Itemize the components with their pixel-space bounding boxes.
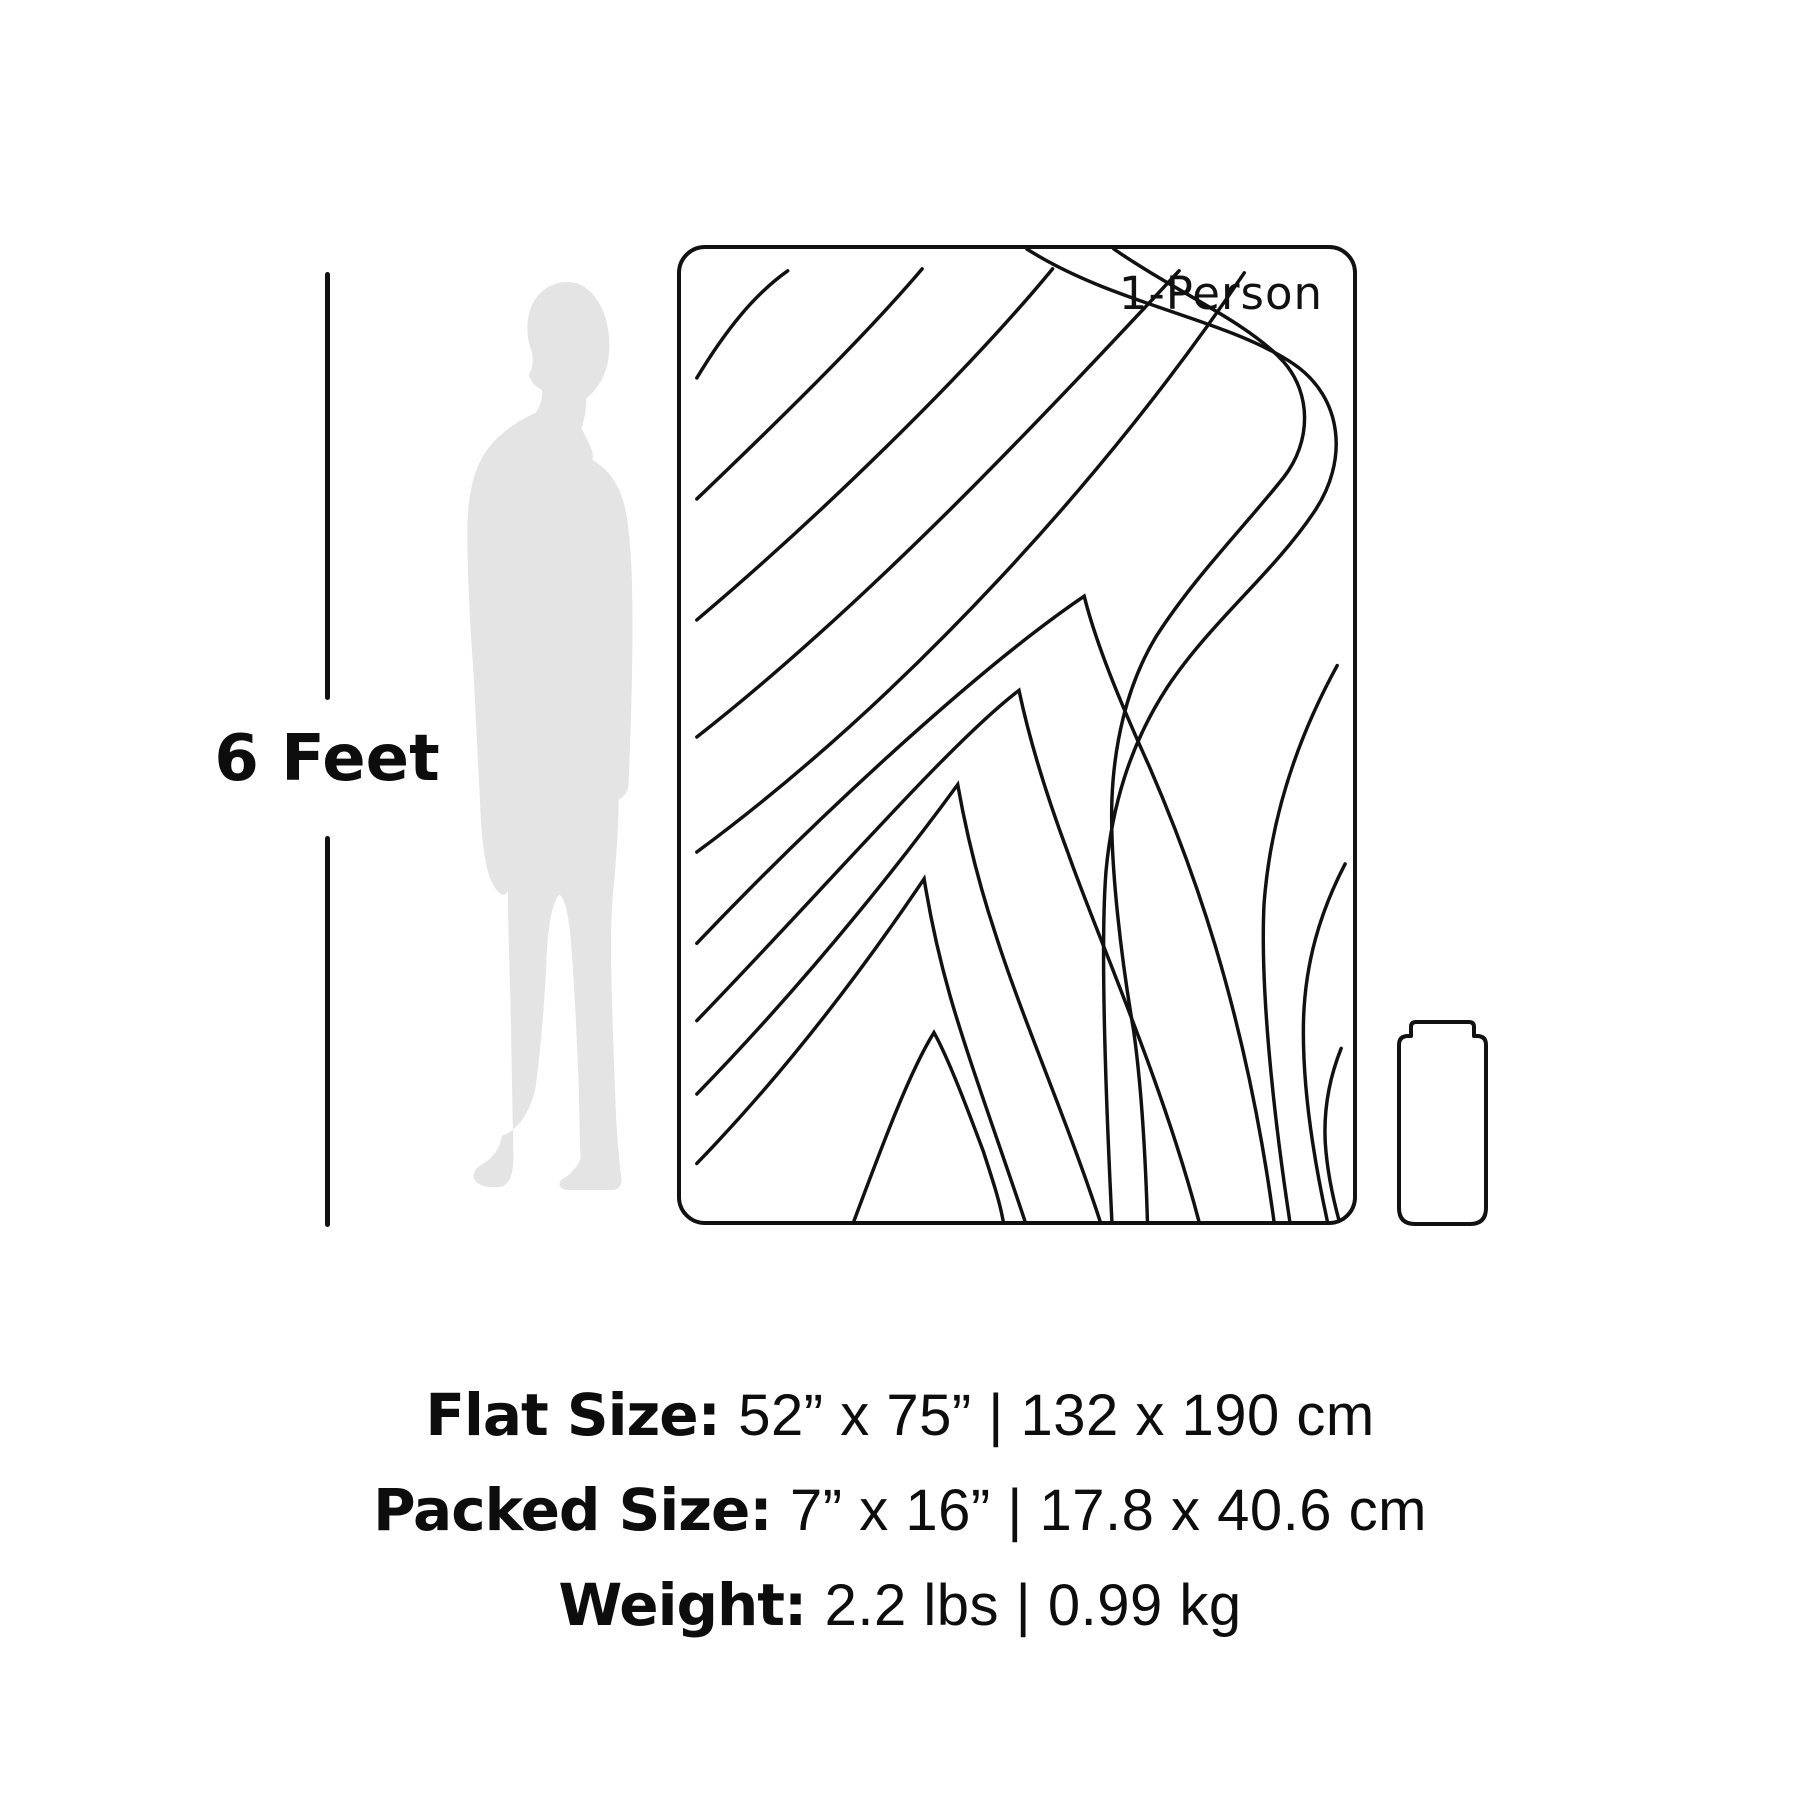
spec-weight-label: Weight: bbox=[558, 1571, 806, 1639]
size-comparison-diagram: 6 Feet 1-Person bbox=[0, 0, 1800, 1800]
spec-flat-size: Flat Size: 52” x 75” | 132 x 190 cm bbox=[0, 1368, 1800, 1463]
blanket-outline: 1-Person bbox=[677, 245, 1357, 1225]
measure-line-bottom bbox=[325, 836, 330, 1227]
spec-weight: Weight: 2.2 lbs | 0.99 kg bbox=[0, 1558, 1800, 1653]
person-silhouette-icon bbox=[452, 275, 692, 1190]
spec-packed-size: Packed Size: 7” x 16” | 17.8 x 40.6 cm bbox=[0, 1463, 1800, 1558]
spec-packed-size-value: 7” x 16” | 17.8 x 40.6 cm bbox=[790, 1478, 1427, 1543]
stuff-sack-icon bbox=[1397, 1019, 1488, 1227]
spec-list: Flat Size: 52” x 75” | 132 x 190 cm Pack… bbox=[0, 1368, 1800, 1653]
spec-weight-value: 2.2 lbs | 0.99 kg bbox=[825, 1573, 1242, 1638]
measure-line-top bbox=[325, 272, 330, 700]
topo-contour-pattern bbox=[681, 249, 1353, 1221]
spec-packed-size-label: Packed Size: bbox=[373, 1476, 771, 1544]
spec-flat-size-label: Flat Size: bbox=[425, 1381, 720, 1449]
blanket-size-label: 1-Person bbox=[1119, 267, 1323, 320]
spec-flat-size-value: 52” x 75” | 132 x 190 cm bbox=[738, 1383, 1374, 1448]
